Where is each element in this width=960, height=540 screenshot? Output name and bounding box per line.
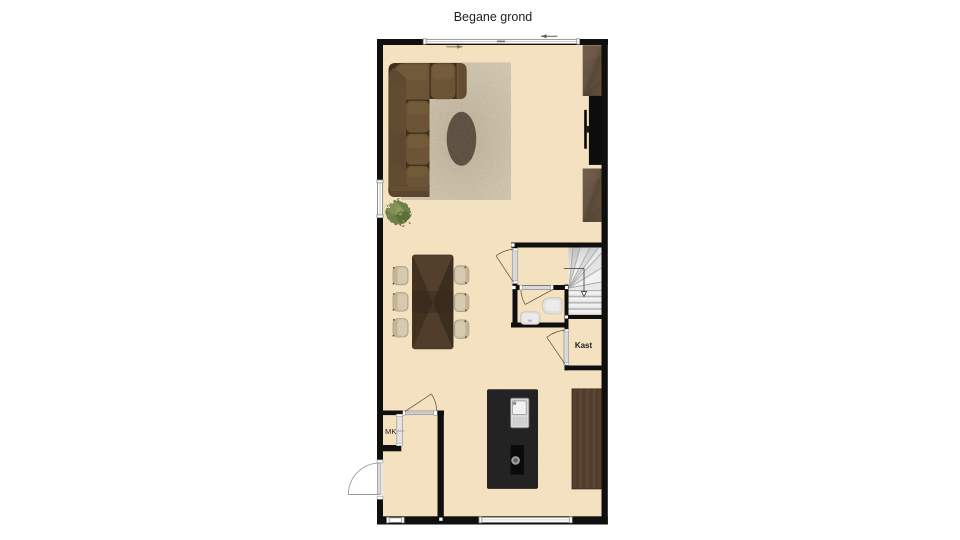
svg-text:Kast: Kast (575, 341, 593, 350)
svg-text:MK: MK (385, 427, 396, 436)
svg-text:Begane grond: Begane grond (454, 10, 533, 24)
